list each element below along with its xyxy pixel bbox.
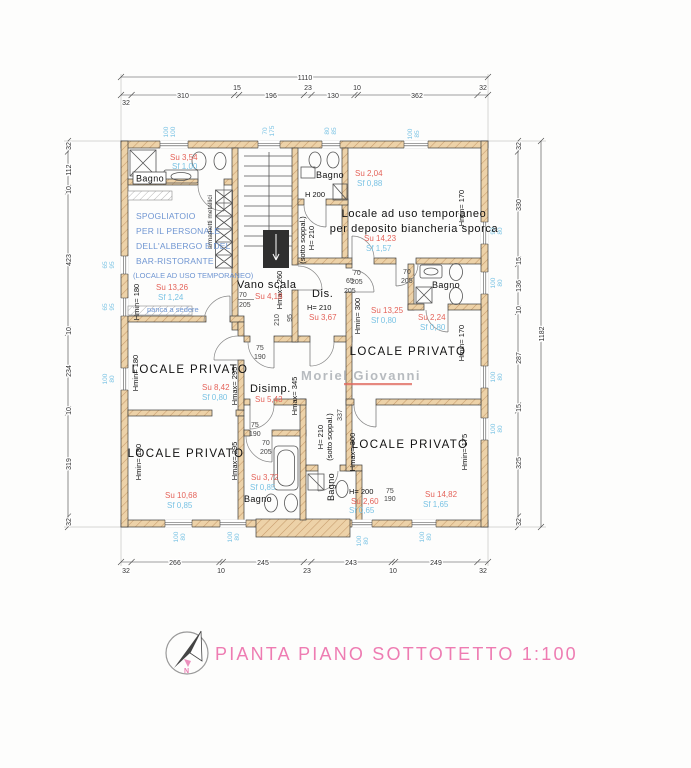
room-label: Dis. <box>312 288 333 300</box>
north-arrow-logo: N <box>166 631 208 675</box>
lockers-label: armadietti metallici <box>207 195 214 249</box>
door-dim: 75 <box>256 345 264 352</box>
door-dim: 210 <box>274 314 281 326</box>
window-dim: 100 <box>163 126 170 137</box>
room-hmax: Hmax= 295 <box>230 367 239 406</box>
room-hmin: Hmin= 180 <box>132 284 141 320</box>
door-dim: 65 <box>346 278 354 285</box>
window-dim: 95 <box>109 261 116 269</box>
room-sf: Sf 1,24 <box>158 293 184 302</box>
toilet-icon <box>450 264 463 281</box>
room-disimp: Disimp. Su 5,43 Hmax= 345 <box>250 377 299 416</box>
dim-right-seg: 287 <box>516 352 523 364</box>
dim-right-seg: 32 <box>516 142 523 150</box>
dim-right-seg: 330 <box>516 199 523 211</box>
toilet-icon <box>336 481 348 498</box>
room-sf: Sf 0,85 <box>167 501 193 510</box>
shower-icon <box>416 287 432 303</box>
bidet-icon <box>285 494 298 512</box>
north-arrow-pink-mark <box>184 659 191 667</box>
room-su: Su 5,43 <box>255 395 283 404</box>
dim-bottom-seg: 243 <box>345 560 357 567</box>
window-dim: 175 <box>269 125 276 136</box>
dim-left-seg: 10 <box>66 327 73 335</box>
dim-right-seg: 15 <box>516 257 523 265</box>
walls <box>121 141 488 537</box>
room-hmin: Hmin= 300 <box>353 298 362 334</box>
window-dim: 100 <box>356 535 363 546</box>
dim-top-seg: 32 <box>479 85 487 92</box>
room-sf: Sf 0,80 <box>371 316 397 325</box>
room-su: Su 2,04 <box>355 169 383 178</box>
door-dim: 70 <box>239 292 247 299</box>
room-su: Su 13,25 <box>371 306 404 315</box>
room-su: Su 8,42 <box>202 383 230 392</box>
dim-left-seg: 32 <box>66 518 73 526</box>
dim-top-seg: 32 <box>122 100 130 107</box>
toilet-icon <box>214 153 226 170</box>
room-hmin: Hmin= 170 <box>457 325 466 361</box>
room-su: Su 3,54 <box>170 153 198 162</box>
room-label: LOCALE PRIVATO <box>128 448 245 460</box>
toilet-icon <box>327 152 339 168</box>
window-dim: 80 <box>497 279 504 287</box>
room-sf: Sf 1,00 <box>172 162 198 171</box>
bidet-icon <box>450 288 463 305</box>
room-height: H 200 <box>305 190 325 199</box>
window-dim: 85 <box>414 130 421 138</box>
window-dim: 100 <box>102 373 109 384</box>
dim-bottom-seg: 266 <box>169 560 181 567</box>
bathtub-icon <box>274 446 298 490</box>
door-dim: 75 <box>251 422 259 429</box>
dim-left-seg: 10 <box>66 407 73 415</box>
dim-right-overall: 1182 <box>539 326 546 341</box>
shower-icon <box>308 474 324 490</box>
room-label: Vano scala <box>237 279 297 291</box>
dim-top-seg: 10 <box>353 85 361 92</box>
corridor-dim: 337 <box>337 409 344 421</box>
room-hmin: Hmin= 180 <box>131 355 140 391</box>
corridor-note: (sotto soppal.) <box>325 413 334 461</box>
dim-left-seg: 10 <box>66 186 73 194</box>
room-label: per deposito biancheria sporca <box>330 223 499 235</box>
window-dim: 65 <box>102 261 109 269</box>
bench-label: panca a sedere <box>147 305 199 314</box>
dim-top-seg: 310 <box>177 93 189 100</box>
door-dim: 75 <box>386 488 394 495</box>
room-label: Bagno <box>136 174 164 184</box>
room-hmax: Hmax= 345 <box>290 377 299 416</box>
window-dim: 100 <box>490 371 497 382</box>
watermark-underline <box>344 383 412 385</box>
dim-bottom-seg: 10 <box>217 568 225 575</box>
drawing-title: PIANTA PIANO SOTTOTETTO 1:100 <box>215 644 578 664</box>
dim-right-seg: 10 <box>516 306 523 314</box>
window-dim: 95 <box>109 303 116 311</box>
room-su: Su 3,67 <box>309 313 337 322</box>
window-dim: 80 <box>324 127 331 135</box>
sink-icon <box>309 152 321 168</box>
room-sf: Sf 0,85 <box>250 483 276 492</box>
room-locale-privato-mid-left: LOCALE PRIVATO Su 8,42 Sf 0,80 Hmin= 180… <box>131 355 248 406</box>
room-dis: Dis. H= 210 Su 3,67 <box>307 288 337 322</box>
room-locale-privato-bottom-left: LOCALE PRIVATO Su 10,68 Sf 0,85 Hmin= 18… <box>128 442 245 510</box>
washbasin-icon <box>420 265 442 278</box>
dim-left-seg: 112 <box>66 164 73 175</box>
corridor-height: H= 210 <box>307 226 316 250</box>
room-sf: Sf 0,65 <box>349 506 375 515</box>
room-desc: BAR-RISTORANTE <box>136 256 214 266</box>
window-dim: 100 <box>407 128 414 139</box>
room-sf: Sf 1,65 <box>423 500 449 509</box>
corridor-note: (sotto soppal.) <box>298 216 307 264</box>
bench-strip <box>128 191 172 200</box>
dim-top-seg: 130 <box>327 93 339 100</box>
door-dim: 70 <box>262 440 270 447</box>
room-su: Su 13,26 <box>156 283 189 292</box>
window-dim: 100 <box>419 531 426 542</box>
window-dim: 85 <box>331 127 338 135</box>
dim-left-seg: 32 <box>66 142 73 150</box>
room-sf: Sf 0,80 <box>202 393 228 402</box>
door-dim: 190 <box>249 431 261 438</box>
room-label: Disimp. <box>250 383 291 395</box>
room-su: Su 14,23 <box>364 234 397 243</box>
door-dim: 205 <box>239 302 251 309</box>
room-height: H= 200 <box>349 487 373 496</box>
stairs <box>244 152 292 268</box>
room-label: LOCALE PRIVATO <box>352 439 469 451</box>
room-su: Su 2,60 <box>351 497 379 506</box>
room-label: Bagno <box>316 170 344 180</box>
dim-top-seg: 23 <box>304 85 312 92</box>
room-desc: SPOGLIATOIO <box>136 211 196 221</box>
room-sf: Sf 0,88 <box>357 179 383 188</box>
watermark-text: Moriel Giovanni <box>301 368 421 383</box>
north-letter: N <box>184 668 189 675</box>
room-sf: Sf 1,57 <box>366 244 392 253</box>
room-labels: Bagno Su 3,54 Sf 1,00 SPOGLIATOIO PER IL… <box>128 153 499 515</box>
dim-left-seg: 234 <box>66 365 73 377</box>
window-dim: 70 <box>262 127 269 135</box>
window-dim: 80 <box>363 537 370 545</box>
room-su: Su 14,82 <box>425 490 458 499</box>
window-dim: 100 <box>173 531 180 542</box>
window-dim: 100 <box>490 277 497 288</box>
room-su: Su 4,18 <box>255 292 283 301</box>
window-dim: 65 <box>102 303 109 311</box>
dim-bottom-seg: 23 <box>303 568 311 575</box>
room-label: Bagno <box>244 494 272 504</box>
dim-bottom-seg: 32 <box>479 568 487 575</box>
washbasin-icon <box>301 167 315 178</box>
room-bagno-bottom-center: Bagno Su 3,72 Sf 0,85 <box>244 473 279 504</box>
dim-left-seg: 319 <box>66 458 73 470</box>
corridor-height: H= 210 <box>316 425 325 449</box>
room-label: LOCALE PRIVATO <box>350 346 467 358</box>
door-dim: 70 <box>403 269 411 276</box>
dim-bottom-seg: 32 <box>122 568 130 575</box>
room-label: Bagno <box>326 473 336 501</box>
room-hmin: Hmin= 180 <box>134 444 143 480</box>
room-hmax: Hmax= 300 <box>348 433 357 472</box>
scanned-floor-plan-page: 1110 32 310 15 196 23 130 10 362 32 32 2… <box>0 0 691 768</box>
room-hmin: Hmin= 175 <box>460 434 469 470</box>
window-dim: 80 <box>234 533 241 541</box>
door-dim: 70 <box>353 270 361 277</box>
door-dim: 95 <box>287 314 294 322</box>
dim-bottom-seg: 245 <box>257 560 269 567</box>
room-sf: Sf 0,80 <box>420 323 446 332</box>
dim-bottom-seg: 249 <box>430 560 442 567</box>
dim-bottom-seg: 10 <box>389 568 397 575</box>
dim-top-overall: 1110 <box>298 75 313 82</box>
room-hmin: Hmin= 170 <box>457 190 466 226</box>
room-desc: (LOCALE AD USO TEMPORANEO) <box>133 271 254 280</box>
door-dim: 205 <box>260 449 272 456</box>
window-dim: 80 <box>497 425 504 433</box>
room-desc: DELL'ALBERGO E DEL <box>136 241 231 251</box>
room-hmax: Hmax= 295 <box>230 442 239 481</box>
floor-plan-svg: 1110 32 310 15 196 23 130 10 362 32 32 2… <box>0 0 691 768</box>
door-dim: 190 <box>384 496 396 503</box>
room-deposito: Locale ad uso temporaneo per deposito bi… <box>330 190 499 253</box>
watermark: Moriel Giovanni <box>301 368 421 385</box>
window-dim: 100 <box>170 126 177 137</box>
window-dim: 80 <box>180 533 187 541</box>
dim-top-seg: 362 <box>411 93 423 100</box>
room-su: Su 10,68 <box>165 491 198 500</box>
door-dim: 205 <box>344 288 356 295</box>
room-spogliatoio: SPOGLIATOIO PER IL PERSONALE DELL'ALBERG… <box>132 195 284 320</box>
room-su: Su 3,72 <box>251 473 279 482</box>
dim-right-seg: 325 <box>516 457 523 469</box>
room-su: Su 2,24 <box>418 313 446 322</box>
room-height: H= 210 <box>307 303 331 312</box>
window-dim: 80 <box>109 375 116 383</box>
window-dim: 100 <box>227 531 234 542</box>
dim-right-seg: 15 <box>516 404 523 412</box>
dim-left-seg: 423 <box>66 254 73 266</box>
dim-top-seg: 196 <box>265 93 277 100</box>
dim-top-seg: 15 <box>233 85 241 92</box>
dim-right-seg: 136 <box>516 280 523 292</box>
room-bagno-bottom-right: Bagno H= 200 Su 2,60 Sf 0,65 <box>326 473 379 515</box>
window-dim: 80 <box>426 533 433 541</box>
dim-right-seg: 32 <box>516 518 523 526</box>
window-dim: 100 <box>490 423 497 434</box>
title-block: N PIANTA PIANO SOTTOTETTO 1:100 <box>166 631 578 675</box>
door-dim: 205 <box>401 278 413 285</box>
room-label: Bagno <box>432 280 460 290</box>
door-dim: 190 <box>254 354 266 361</box>
window-dim: 80 <box>497 373 504 381</box>
